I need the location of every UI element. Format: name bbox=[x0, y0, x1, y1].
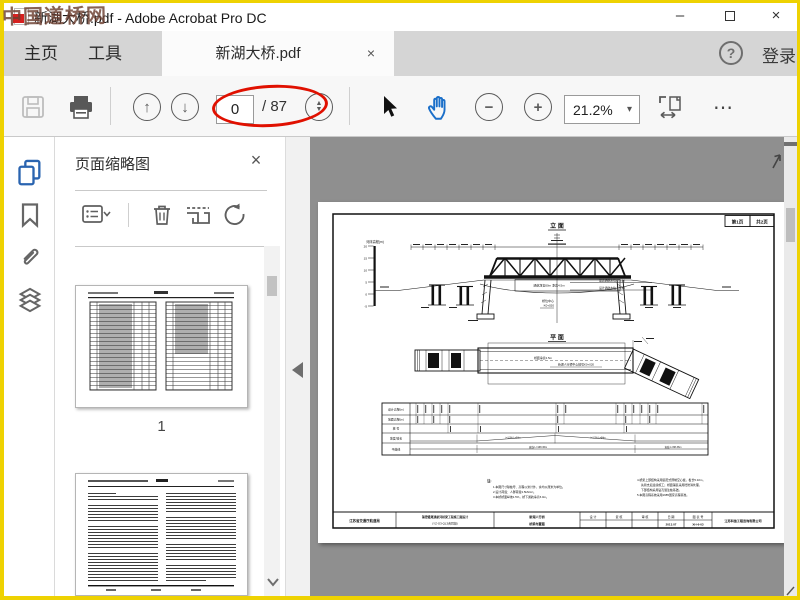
navigation-rail bbox=[4, 137, 55, 596]
svg-text:地面高程(m): 地面高程(m) bbox=[388, 417, 404, 422]
layers-icon bbox=[16, 286, 44, 314]
zoom-level-dropdown[interactable]: 21.2% ▾ bbox=[564, 95, 640, 124]
svg-text:立 面: 立 面 bbox=[550, 222, 564, 230]
svg-text:1.本图尺寸除桩号、高程以米计外，余均以厘米为单位。: 1.本图尺寸除桩号、高程以米计外，余均以厘米为单位。 bbox=[493, 484, 565, 489]
svg-text:5.本图高程系统采用1985国家高程基准。: 5.本图高程系统采用1985国家高程基准。 bbox=[637, 492, 689, 497]
options-icon bbox=[81, 202, 111, 228]
grade-row: i=1.5% L=84m i=1.5% L=84m bbox=[410, 434, 708, 444]
rotate-ccw-icon bbox=[222, 202, 248, 228]
svg-text:最高通航水位 ▽2.50: 最高通航水位 ▽2.50 bbox=[599, 279, 625, 283]
split-pages-icon bbox=[184, 202, 212, 228]
sign-in-link[interactable]: 登录 bbox=[762, 42, 796, 67]
ellipsis-icon: ⋯ bbox=[713, 95, 735, 120]
svg-text:设计通航水位 ▽1.80: 设计通航水位 ▽1.80 bbox=[599, 286, 625, 290]
minus-icon: − bbox=[475, 93, 503, 121]
delete-pages-button[interactable] bbox=[150, 202, 176, 228]
thumbnails-panel: 页面缩略图 × bbox=[55, 137, 285, 596]
previous-page-button[interactable]: ↑ bbox=[132, 92, 162, 122]
elevation-scale: 河床高程(m) 20 15 10 5 0 -5 bbox=[364, 239, 384, 309]
document-tab[interactable]: 新湖大桥.pdf × bbox=[162, 31, 394, 76]
svg-text:坡度/坡长: 坡度/坡长 bbox=[390, 436, 402, 441]
close-button[interactable]: × bbox=[756, 3, 796, 29]
svg-text:0: 0 bbox=[365, 293, 367, 297]
svg-text:江苏科信工程咨询有限公司: 江苏科信工程咨询有限公司 bbox=[724, 518, 761, 523]
svg-text:共2页: 共2页 bbox=[756, 219, 768, 226]
svg-text:直线 L=88.36m: 直线 L=88.36m bbox=[665, 445, 682, 449]
profile-table: 设计高程(m) 地面高程(m) 桩 号 坡度/坡长 平曲线 bbox=[382, 403, 708, 455]
document-view[interactable]: 第1页 共2页 立 面 bbox=[310, 137, 784, 596]
trash-icon bbox=[150, 202, 174, 228]
panel-scrollbar-thumb[interactable] bbox=[267, 276, 277, 296]
panel-divider bbox=[75, 190, 267, 191]
svg-text:2013.07: 2013.07 bbox=[666, 523, 677, 527]
zoom-out-button[interactable]: − bbox=[474, 92, 504, 122]
plus-icon: + bbox=[524, 93, 552, 121]
page-scroll-mode-button[interactable]: ▲▼ bbox=[304, 92, 334, 122]
water-levels: 最高通航水位 ▽2.50 设计通航水位 ▽1.80 bbox=[570, 279, 652, 291]
svg-text:设 计: 设 计 bbox=[590, 514, 597, 519]
panel-scrollbar[interactable] bbox=[264, 246, 280, 596]
fit-width-button[interactable] bbox=[656, 92, 686, 122]
svg-text:5: 5 bbox=[365, 281, 367, 285]
svg-text:注:: 注: bbox=[487, 478, 492, 483]
document-tab-close-icon[interactable]: × bbox=[362, 44, 380, 62]
svg-text:新湖人行桥: 新湖人行桥 bbox=[529, 514, 545, 519]
profile-number-texture bbox=[417, 405, 704, 432]
attachments-panel-button[interactable] bbox=[16, 243, 46, 273]
svg-text:-5: -5 bbox=[364, 305, 367, 309]
zoom-in-button[interactable]: + bbox=[523, 92, 553, 122]
print-icon bbox=[67, 94, 95, 120]
svg-text:(YZ-G3-QL3合同段): (YZ-G3-QL3合同段) bbox=[432, 521, 458, 526]
svg-text:桥位中心: 桥位中心 bbox=[542, 298, 554, 303]
svg-text:20: 20 bbox=[364, 245, 368, 249]
svg-text:2.设计荷载：人群荷载3.5kN/m²。: 2.设计荷载：人群荷载3.5kN/m²。 bbox=[493, 489, 536, 494]
tab-bar: 主页 工具 新湖大桥.pdf × ? 登录 bbox=[4, 31, 797, 76]
arrow-up-icon: ↑ bbox=[133, 93, 161, 121]
zoom-level-value: 21.2% bbox=[565, 102, 627, 118]
panel-divider bbox=[75, 246, 267, 247]
minimize-button[interactable]: – bbox=[660, 3, 700, 29]
svg-text:桩 号: 桩 号 bbox=[393, 426, 400, 431]
title-bar: 新湖大桥.pdf - Adobe Acrobat Pro DC – × bbox=[4, 3, 797, 31]
mouse-cursor-icon bbox=[770, 153, 784, 171]
panel-collapse-strip[interactable] bbox=[285, 137, 310, 596]
toolbar-separator bbox=[110, 87, 111, 125]
sheet-number: 第1页 共2页 bbox=[725, 216, 774, 227]
svg-text:10: 10 bbox=[364, 269, 368, 273]
bookmarks-panel-button[interactable] bbox=[16, 201, 46, 231]
thumbnail-1-preview bbox=[76, 286, 247, 407]
paperclip-icon bbox=[16, 243, 44, 271]
split-pages-button[interactable] bbox=[184, 202, 210, 228]
svg-text:日 期: 日 期 bbox=[668, 514, 675, 519]
svg-text:图 表 号: 图 表 号 bbox=[693, 514, 704, 519]
thumbnail-1-page-number: 1 bbox=[75, 418, 248, 435]
bridge-center-label: 桥位中心 K0+020 bbox=[540, 298, 554, 308]
hand-tool-button[interactable] bbox=[422, 92, 452, 122]
toolbar-separator bbox=[349, 87, 350, 125]
fit-width-icon bbox=[657, 94, 685, 120]
page-scroll-icon: ▲▼ bbox=[305, 93, 333, 121]
title-block: 江苏省交通厅航道局 锡澄灌溉通航河桥梁工程施工图设计 (YZ-G3-QL3合同段… bbox=[333, 512, 774, 528]
elevation-view: 立 面 bbox=[364, 222, 739, 323]
page-thumbnails-panel-button[interactable] bbox=[16, 158, 46, 188]
save-icon bbox=[20, 94, 46, 120]
app-window: 新湖大桥.pdf - Adobe Acrobat Pro DC – × 中国道桥… bbox=[0, 0, 800, 600]
svg-text:设计高程(m): 设计高程(m) bbox=[388, 407, 404, 412]
page-number-input[interactable] bbox=[216, 95, 254, 124]
panel-scroll-down-chevron[interactable] bbox=[266, 577, 280, 587]
more-tools-button[interactable]: ⋯ bbox=[709, 92, 739, 122]
svg-text:河床高程(m): 河床高程(m) bbox=[366, 239, 384, 244]
page-total-label: / 87 bbox=[262, 98, 287, 115]
svg-text:新湖人行桥中心桩号K0+020: 新湖人行桥中心桩号K0+020 bbox=[558, 362, 594, 367]
toolbar: ↑ ↓ / 87 ▲▼ − + 21.2% bbox=[4, 76, 797, 137]
svg-text:下部结构采用钻孔灌注桩基础。: 下部结构采用钻孔灌注桩基础。 bbox=[641, 487, 681, 492]
notes: 注: 1.本图尺寸除桩号、高程以米计外，余均以厘米为单位。 2.设计荷载：人群荷… bbox=[487, 477, 705, 499]
bookmark-icon bbox=[16, 201, 44, 229]
panel-toolbar-separator bbox=[128, 203, 129, 227]
plan-view: 平 面 桥面净宽4.5m bbox=[415, 334, 699, 399]
document-scrollbar-thumb[interactable] bbox=[786, 208, 795, 242]
svg-text:审 核: 审 核 bbox=[642, 514, 649, 519]
document-tab-label: 新湖大桥.pdf bbox=[162, 31, 354, 76]
tab-home[interactable]: 主页 bbox=[24, 31, 58, 76]
maximize-button[interactable] bbox=[710, 3, 750, 29]
plan-center-deck: 桥面净宽4.5m 新湖人行桥中心桩号K0+020 bbox=[478, 348, 633, 373]
panel-close-icon[interactable]: × bbox=[245, 149, 267, 171]
page-thumbnails-icon bbox=[16, 158, 44, 186]
svg-text:直线 L=168.36m: 直线 L=168.36m bbox=[529, 445, 547, 449]
svg-text:K0+020: K0+020 bbox=[544, 304, 555, 308]
thumbnail-page-2[interactable] bbox=[75, 473, 248, 596]
svg-text:第1页: 第1页 bbox=[732, 219, 744, 226]
svg-text:i=1.5% L=84m: i=1.5% L=84m bbox=[591, 438, 606, 440]
print-button[interactable] bbox=[66, 92, 96, 122]
rotate-pages-button[interactable] bbox=[222, 202, 248, 228]
layers-panel-button[interactable] bbox=[16, 286, 46, 316]
svg-text:4.桥梁上部结构采用装配式预制空心板，板长5.32m，: 4.桥梁上部结构采用装配式预制空心板，板长5.32m， bbox=[637, 477, 705, 482]
thumbnail-page-1[interactable] bbox=[75, 285, 248, 408]
svg-text:i=1.5% L=84m: i=1.5% L=84m bbox=[506, 438, 521, 440]
plan-dim-texture bbox=[634, 338, 654, 342]
plan-left-approach bbox=[415, 350, 480, 371]
truss bbox=[484, 258, 631, 277]
svg-text:平 面: 平 面 bbox=[550, 334, 564, 342]
arrow-down-icon: ↓ bbox=[171, 93, 199, 121]
svg-text:XH-6-03: XH-6-03 bbox=[692, 523, 704, 527]
maximize-icon bbox=[725, 11, 735, 21]
save-button[interactable] bbox=[18, 92, 48, 122]
svg-text:先简支后连续施工；桥面铺装采用砼防滑处理，: 先简支后连续施工；桥面铺装采用砼防滑处理， bbox=[641, 482, 702, 487]
thumbnail-options-button[interactable] bbox=[81, 202, 107, 228]
help-icon[interactable]: ? bbox=[719, 41, 743, 65]
frame-border-bottom bbox=[0, 596, 800, 600]
thumbnail-2-preview bbox=[76, 474, 247, 595]
svg-text:桥梁布置图: 桥梁布置图 bbox=[528, 521, 544, 526]
panel-title: 页面缩略图 bbox=[75, 153, 150, 174]
watermark: 中国道桥网 bbox=[2, 0, 107, 30]
hand-icon bbox=[424, 94, 450, 121]
svg-text:平曲线: 平曲线 bbox=[392, 447, 401, 452]
select-tool-button[interactable] bbox=[374, 92, 404, 122]
svg-text:15: 15 bbox=[364, 257, 368, 261]
document-scrollbar[interactable] bbox=[784, 137, 797, 596]
svg-text:江苏省交通厅航道局: 江苏省交通厅航道局 bbox=[349, 518, 380, 523]
dimension-texture bbox=[413, 244, 700, 246]
next-page-button[interactable]: ↓ bbox=[170, 92, 200, 122]
svg-text:复 核: 复 核 bbox=[616, 514, 623, 519]
svg-text:通航净宽60m 净高4.5m: 通航净宽60m 净高4.5m bbox=[533, 283, 565, 288]
cursor-icon bbox=[378, 95, 400, 119]
scrollbar-top-mark bbox=[784, 142, 797, 146]
svg-text:3.本桥桥面纵坡1.5%，桥下通航净高5.0m。: 3.本桥桥面纵坡1.5%，桥下通航净高5.0m。 bbox=[493, 494, 549, 499]
curve-row: 直线 L=168.36m 直线 L=88.36m bbox=[410, 445, 708, 453]
bridge-drawing: 第1页 共2页 立 面 bbox=[318, 202, 784, 543]
resize-grip-icon[interactable] bbox=[784, 585, 796, 597]
pdf-page: 第1页 共2页 立 面 bbox=[318, 202, 784, 543]
collapse-left-icon bbox=[292, 362, 303, 378]
tab-tools[interactable]: 工具 bbox=[88, 31, 122, 76]
plan-right-approach bbox=[625, 349, 699, 398]
chevron-down-icon: ▾ bbox=[627, 104, 639, 115]
svg-text:锡澄灌溉通航河桥梁工程施工图设计: 锡澄灌溉通航河桥梁工程施工图设计 bbox=[422, 514, 468, 519]
svg-text:桥面净宽4.5m: 桥面净宽4.5m bbox=[534, 355, 553, 360]
